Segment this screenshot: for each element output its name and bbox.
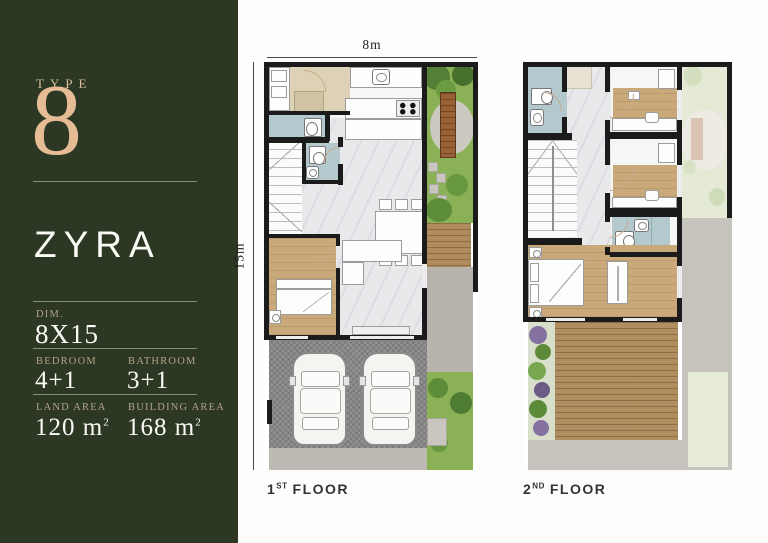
garden-bench bbox=[440, 92, 456, 158]
shrub-ghost bbox=[684, 66, 702, 86]
planter-flowers bbox=[533, 420, 549, 436]
kitchen-bench bbox=[345, 119, 422, 140]
height-dimension-label: 15m bbox=[232, 242, 248, 269]
entry-step bbox=[352, 326, 410, 335]
second-floor-plan bbox=[523, 62, 732, 470]
sofa-chaise bbox=[342, 262, 364, 285]
wall bbox=[302, 143, 306, 184]
shrub-ghost bbox=[709, 188, 725, 206]
shrub bbox=[535, 344, 551, 360]
staircase bbox=[269, 140, 302, 234]
divider bbox=[33, 301, 197, 302]
planter-flowers bbox=[529, 326, 547, 344]
sink-icon bbox=[306, 166, 319, 179]
window bbox=[422, 264, 427, 288]
building-area-label: BUILDING AREA bbox=[128, 402, 225, 413]
wall bbox=[267, 400, 272, 424]
stepping-stone bbox=[436, 173, 446, 183]
unit-name: ZYRA bbox=[34, 224, 161, 266]
shrub bbox=[428, 378, 448, 398]
land-area-label: LAND AREA bbox=[36, 402, 107, 413]
wall bbox=[302, 180, 343, 184]
kitchen-sink-icon bbox=[372, 69, 390, 85]
info-panel: TYPE 8 ZYRA DIM. 8X15 BEDROOM 4+1 BATHRO… bbox=[0, 0, 238, 543]
dining-chair bbox=[379, 199, 392, 210]
wall bbox=[610, 252, 677, 257]
window bbox=[677, 266, 682, 298]
bench-ghost bbox=[691, 118, 703, 160]
window bbox=[677, 165, 682, 197]
wall bbox=[610, 208, 677, 217]
bedroom-label: BEDROOM bbox=[36, 356, 97, 367]
wall bbox=[338, 137, 343, 147]
shrub-ghost bbox=[683, 160, 696, 175]
first-floor-plan bbox=[264, 62, 478, 470]
desk-chair bbox=[645, 190, 659, 201]
wall bbox=[264, 62, 478, 67]
wall bbox=[610, 132, 677, 139]
second-floor-label: 2NDFLOOR bbox=[523, 481, 606, 497]
wall bbox=[605, 62, 610, 92]
bedroom-value: 4+1 bbox=[35, 368, 77, 393]
stove-icon bbox=[396, 100, 420, 117]
wall bbox=[523, 62, 732, 67]
first-floor-label: 1STFLOOR bbox=[267, 481, 349, 497]
sofa bbox=[342, 240, 402, 262]
divider bbox=[33, 394, 197, 395]
car bbox=[362, 352, 417, 446]
bed-headboard bbox=[276, 279, 332, 289]
cabinet bbox=[271, 70, 287, 82]
wall bbox=[336, 238, 340, 246]
sliding-door bbox=[350, 336, 414, 339]
wall bbox=[605, 120, 610, 165]
dresser bbox=[269, 310, 281, 324]
bottom-surround bbox=[528, 440, 682, 470]
wall bbox=[473, 62, 478, 292]
nightstand bbox=[529, 247, 542, 258]
bathroom-label: BATHROOM bbox=[128, 356, 197, 367]
type-number: 8 bbox=[31, 70, 82, 172]
car bbox=[292, 352, 347, 446]
width-dimension-label: 8m bbox=[267, 37, 477, 53]
cabinet bbox=[271, 86, 287, 98]
master-wardrobe bbox=[607, 261, 628, 304]
wall bbox=[264, 62, 269, 340]
wall bbox=[528, 238, 582, 245]
shrub bbox=[426, 198, 452, 222]
bathroom-value: 3+1 bbox=[127, 368, 169, 393]
toilet-icon bbox=[304, 118, 322, 137]
wardrobe bbox=[658, 69, 675, 89]
linen-closet bbox=[565, 65, 592, 89]
wall bbox=[528, 133, 572, 140]
divider bbox=[33, 348, 197, 349]
lawn-below bbox=[688, 372, 728, 467]
wall bbox=[269, 111, 350, 115]
building-area-value: 168 m2 bbox=[127, 415, 202, 440]
wall bbox=[562, 117, 567, 133]
window bbox=[276, 336, 308, 339]
wall bbox=[336, 268, 340, 335]
window bbox=[677, 90, 682, 120]
wall bbox=[269, 137, 329, 143]
height-dimension-line bbox=[253, 62, 254, 470]
shrub bbox=[529, 400, 547, 418]
wall bbox=[422, 62, 427, 340]
desk-chair bbox=[645, 112, 659, 123]
land-area-value: 120 m2 bbox=[35, 415, 110, 440]
roof-deck bbox=[555, 322, 678, 440]
shrub bbox=[446, 174, 468, 196]
sink-icon bbox=[634, 219, 649, 232]
stepping-stone bbox=[428, 162, 438, 172]
staircase bbox=[528, 140, 577, 237]
wardrobe bbox=[658, 143, 675, 163]
wall bbox=[269, 234, 340, 238]
shrub bbox=[528, 362, 546, 380]
pillow bbox=[530, 263, 539, 282]
side-path bbox=[427, 267, 473, 372]
driveway-apron bbox=[269, 448, 427, 470]
dim-value: 8X15 bbox=[35, 321, 99, 348]
path-pad bbox=[427, 418, 447, 446]
width-dimension-line bbox=[267, 57, 477, 58]
tree bbox=[452, 64, 474, 86]
stepping-stone bbox=[429, 184, 439, 194]
dining-chair bbox=[395, 199, 408, 210]
window bbox=[546, 318, 585, 321]
sink-icon bbox=[530, 109, 544, 126]
wood-deck bbox=[427, 223, 471, 267]
pillow bbox=[530, 284, 539, 303]
divider bbox=[33, 181, 197, 182]
wall bbox=[562, 62, 567, 92]
wall bbox=[727, 62, 732, 218]
balcony-door bbox=[623, 318, 657, 321]
wall bbox=[523, 62, 528, 322]
planter-flowers bbox=[534, 382, 550, 398]
brochure-page: TYPE 8 ZYRA DIM. 8X15 BEDROOM 4+1 BATHRO… bbox=[0, 0, 768, 543]
shrub bbox=[450, 392, 472, 414]
bed bbox=[276, 289, 332, 315]
